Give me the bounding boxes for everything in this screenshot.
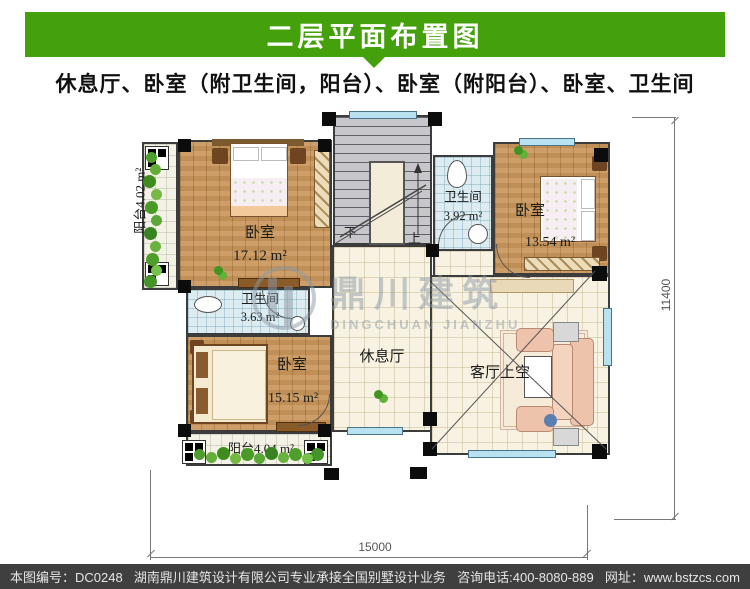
dimension-right-value: 11400 — [659, 265, 673, 325]
company-slogan: 湖南鼎川建筑设计有限公司专业承接全国别墅设计业务 — [134, 567, 446, 586]
room-summary-subtitle: 休息厅、卧室（附卫生间，阳台）、卧室（附阳台）、卧室、卫生间 — [0, 68, 750, 98]
dimension-bottom-value: 15000 — [340, 540, 410, 554]
banner-pointer-triangle — [363, 57, 385, 68]
title-banner: 二层平面布置图 — [25, 12, 725, 57]
extension-line — [632, 117, 676, 118]
watermark-cn: 鼎川建筑 — [330, 265, 520, 317]
sheet-number: 本图编号：DC0248 — [10, 567, 123, 586]
floor-plan-page: 二层平面布置图 休息厅、卧室（附卫生间，阳台）、卧室（附阳台）、卧室、卫生间 阳… — [0, 0, 750, 589]
extension-line — [150, 470, 151, 560]
dimension-line-right — [674, 117, 675, 520]
footer-bar: 本图编号：DC0248 湖南鼎川建筑设计有限公司专业承接全国别墅设计业务 咨询电… — [0, 564, 750, 589]
page-title: 二层平面布置图 — [267, 15, 484, 54]
phone-number: 咨询电话:400-8080-889 — [457, 567, 594, 586]
extension-line — [614, 519, 676, 520]
logo-bar — [268, 278, 277, 318]
dingchuan-logo-icon — [252, 266, 316, 330]
watermark: 鼎川建筑 DINGCHUAN JIANZHU — [252, 252, 592, 344]
watermark-en: DINGCHUAN JIANZHU — [330, 317, 520, 332]
dimension-line-bottom — [150, 557, 588, 558]
website-url: 网址：www.bstzcs.com — [605, 567, 740, 586]
logo-bar — [284, 286, 293, 326]
